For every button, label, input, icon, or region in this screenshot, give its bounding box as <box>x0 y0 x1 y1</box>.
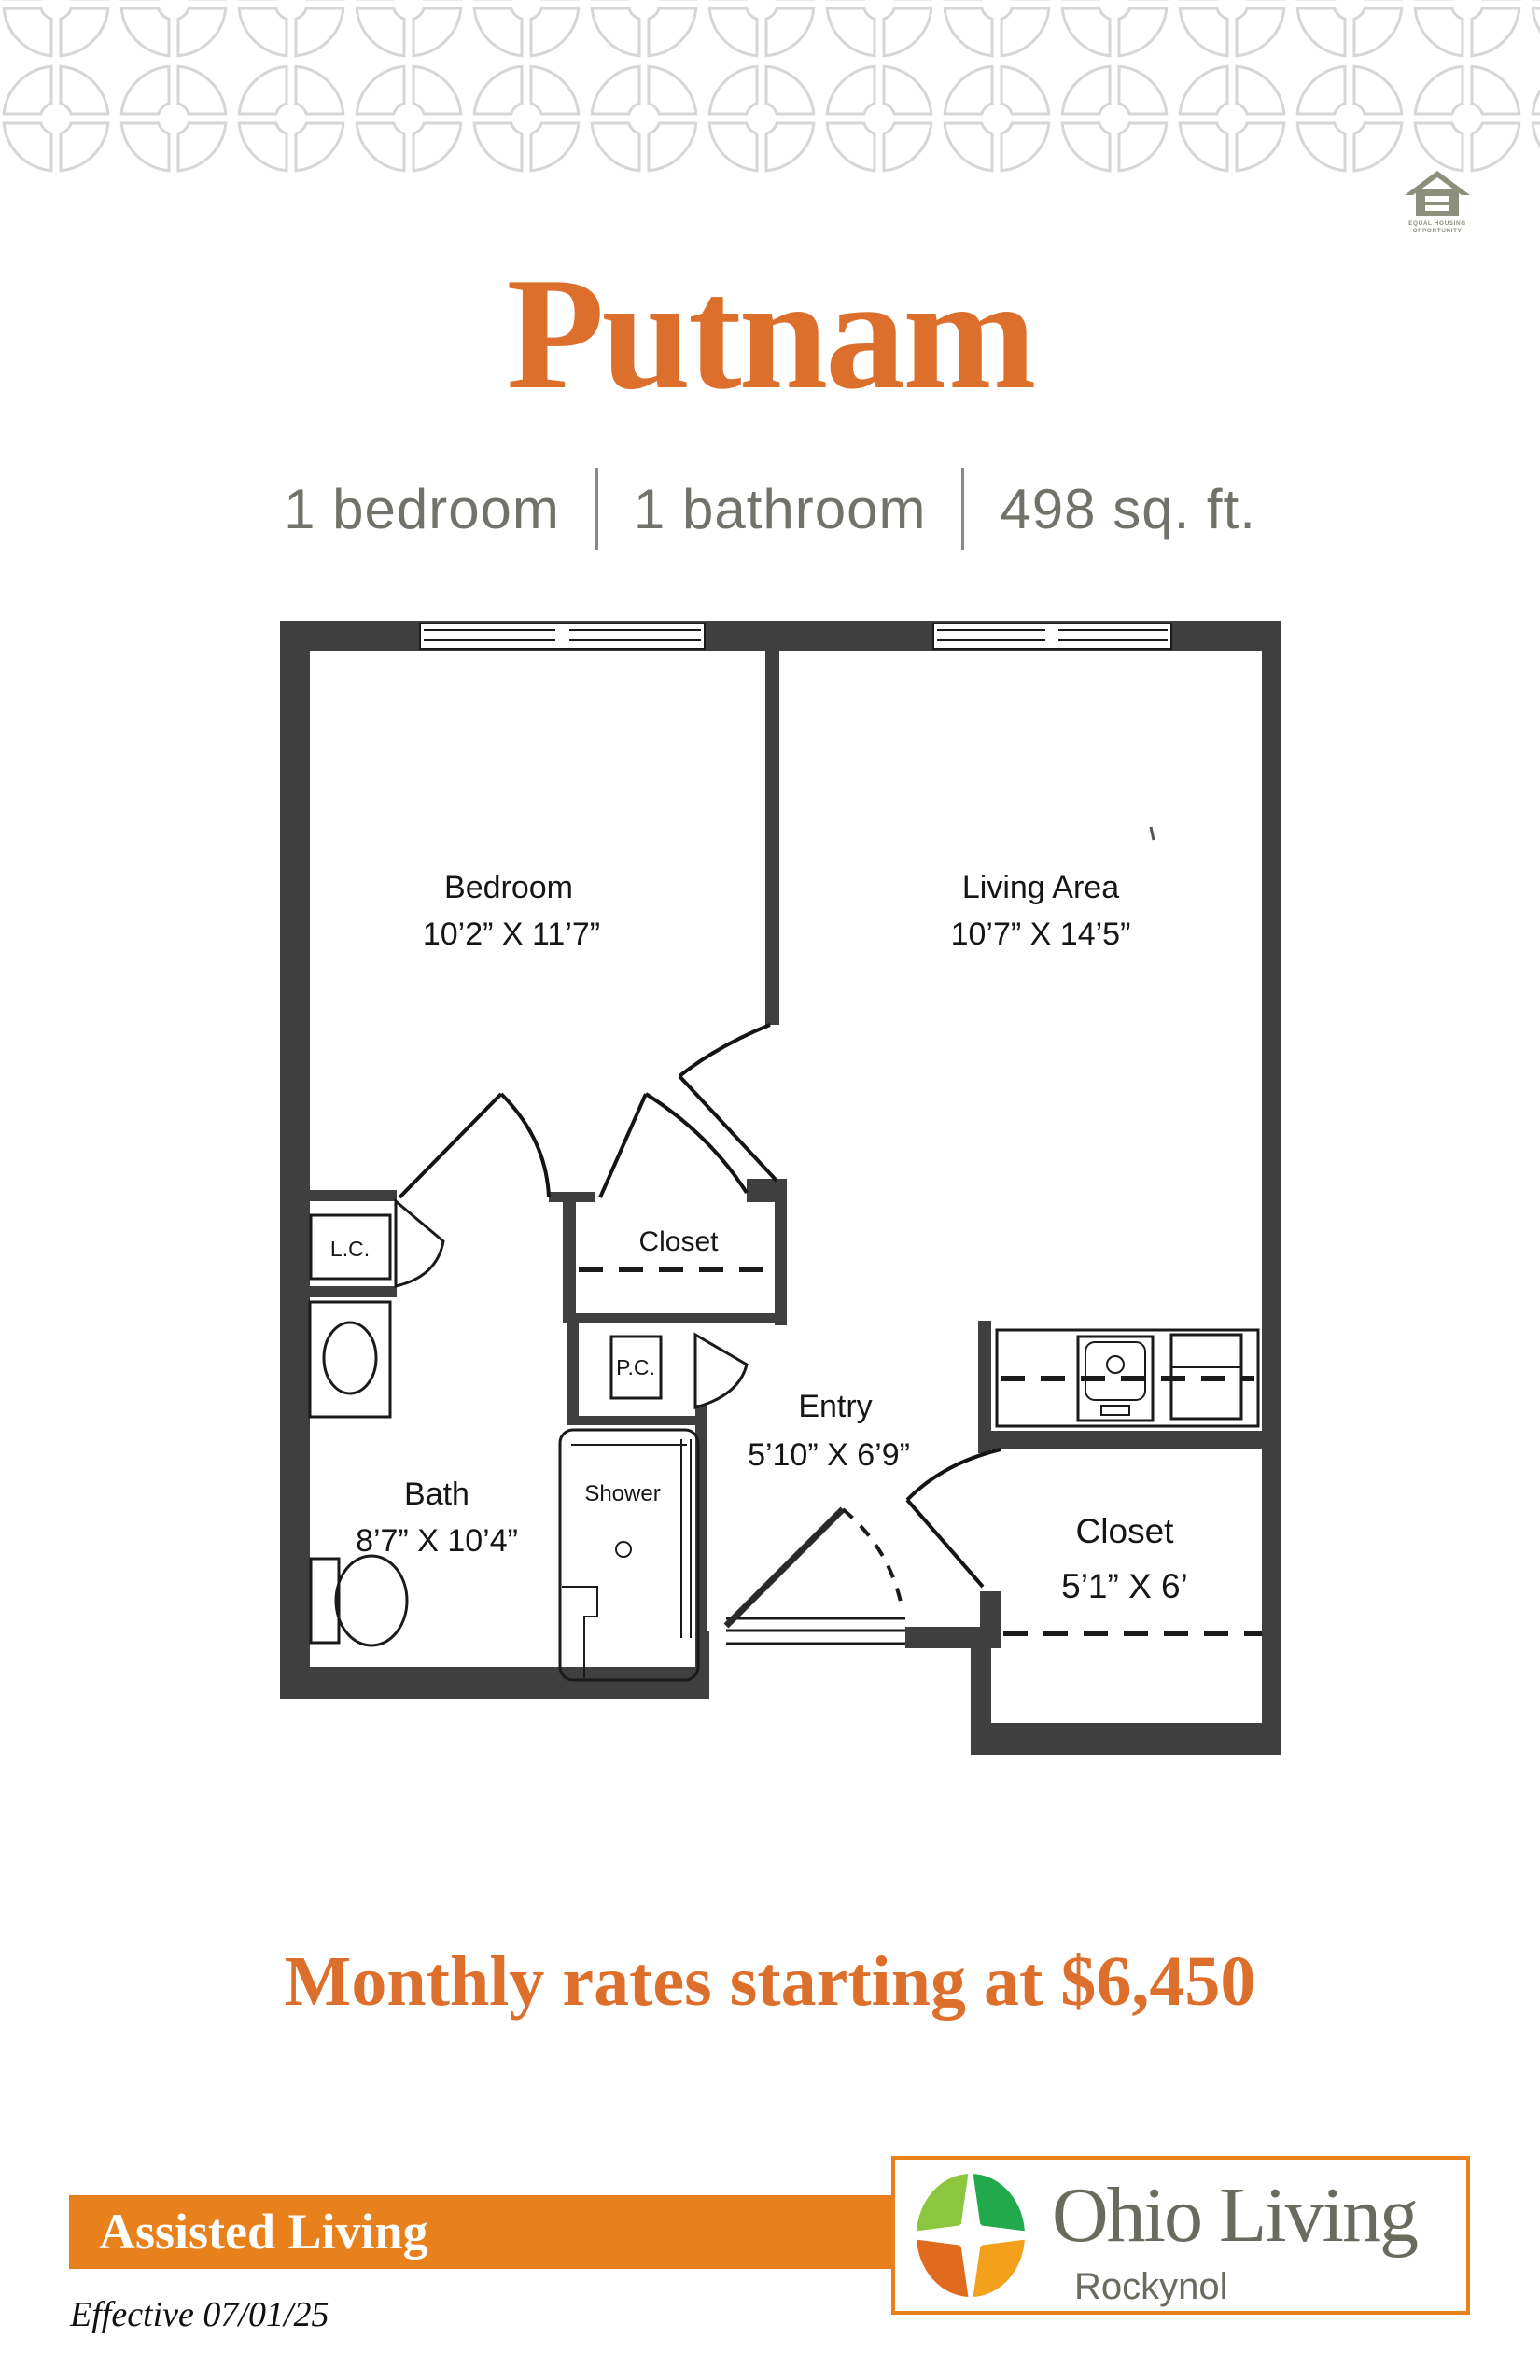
brand-name: Ohio Living <box>1052 2177 1417 2255</box>
ohio-living-compass-icon <box>910 2165 1031 2305</box>
eho-label-line1: EQUAL HOUSING <box>1408 220 1466 227</box>
bedroom-label: Bedroom <box>444 870 573 905</box>
shower-label: Shower <box>584 1481 660 1506</box>
page-title: Putnam <box>0 254 1540 414</box>
linen-closet-door <box>396 1201 443 1286</box>
scan-artifact <box>1151 827 1154 840</box>
eho-house-body <box>1416 189 1459 216</box>
decorative-pattern-band <box>0 0 1540 174</box>
entry-label: Entry <box>798 1389 872 1424</box>
bath-label: Bath <box>404 1477 469 1512</box>
equal-housing-opportunity-icon: EQUAL HOUSING OPPORTUNITY <box>1405 171 1470 238</box>
pantry-closet-door <box>695 1335 747 1407</box>
living-area-dims: 10’7” X 14’5” <box>951 917 1131 952</box>
bathroom-count: 1 bathroom <box>634 477 927 541</box>
ohio-living-logo-box: Ohio Living Rockynol <box>891 2156 1470 2315</box>
flyer-page: EQUAL HOUSING OPPORTUNITY Putnam 1 bedro… <box>0 0 1540 2380</box>
separator-bar <box>961 468 964 550</box>
bedroom-dims: 10’2” X 11’7” <box>423 917 600 952</box>
care-level-band: Assisted Living <box>69 2195 891 2269</box>
hall-closet-label: Closet <box>638 1226 719 1257</box>
window-living <box>933 623 1171 649</box>
linen-closet-label: L.C. <box>330 1237 370 1261</box>
entry-dims: 5’10” X 6’9” <box>748 1437 910 1473</box>
unit-summary: 1 bedroom 1 bathroom 498 sq. ft. <box>0 471 1540 546</box>
separator-bar <box>595 468 598 550</box>
toilet <box>311 1556 407 1645</box>
entry-closet-dims: 5’1” X 6’ <box>1061 1567 1188 1605</box>
living-area-label: Living Area <box>962 870 1119 905</box>
entry-door <box>726 1509 905 1650</box>
window-bedroom <box>420 623 705 649</box>
entry-closet-label: Closet <box>1076 1512 1175 1550</box>
shower-stall <box>560 1430 698 1680</box>
floor-plan: Bedroom 10’2” X 11’7” Living Area 10’7” … <box>280 616 1283 1759</box>
pricing-line: Monthly rates starting at $6,450 <box>0 1941 1540 2023</box>
eho-label-line2: OPPORTUNITY <box>1413 228 1463 234</box>
washer <box>310 1302 390 1417</box>
community-name: Rockynol <box>1074 2266 1228 2308</box>
kitchenette-counter <box>997 1330 1258 1426</box>
bath-dims: 8’7” X 10’4” <box>356 1523 518 1559</box>
square-footage: 498 sq. ft. <box>1000 477 1256 541</box>
effective-date: Effective 07/01/25 <box>70 2294 329 2335</box>
bedroom-count: 1 bedroom <box>284 477 560 541</box>
pantry-closet-label: P.C. <box>616 1355 655 1379</box>
